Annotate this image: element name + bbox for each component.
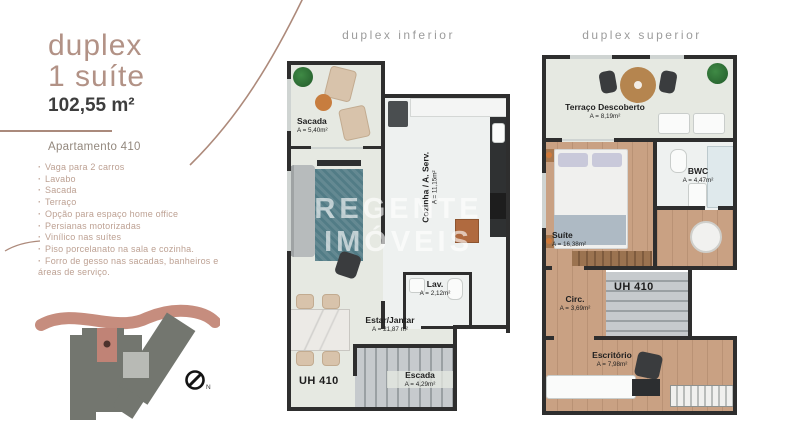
dining-chair	[322, 351, 340, 366]
service-cabinet	[455, 219, 479, 243]
wall	[506, 94, 510, 333]
plan-title-superior: duplex superior	[542, 28, 742, 42]
dining-chair	[322, 294, 340, 309]
desk-dark	[632, 379, 660, 396]
room-name: Sacada	[297, 117, 328, 127]
unit-label-inferior: UH 410	[299, 375, 339, 387]
room-name: Terraço Descoberto	[555, 103, 655, 113]
stove	[490, 193, 506, 219]
feature-item: ·Piso porcelanato na sala e cozinha.	[38, 244, 238, 256]
room-label-escada: Escada A = 4,29m²	[387, 371, 453, 388]
room-label-sacada: Sacada A = 5,40m²	[297, 117, 328, 134]
wall	[594, 336, 692, 340]
area-rug	[315, 169, 363, 261]
room-name: BWC	[662, 167, 734, 177]
wall	[542, 55, 546, 415]
wall	[287, 61, 385, 65]
info-panel: duplex 1 suíte 102,55 m² Apartamento 410…	[0, 0, 285, 441]
feature-item: ·Persianas motorizadas	[38, 221, 238, 233]
feature-list: ·Vaga para 2 carros ·Lavabo ·Sacada ·Ter…	[38, 162, 238, 279]
wall	[688, 266, 737, 270]
window	[650, 55, 684, 59]
wall	[584, 266, 692, 270]
room-label-escritorio: Escritório A = 7,98m²	[567, 351, 657, 368]
room-name: Escritório	[567, 351, 657, 361]
feature-label: Persianas motorizadas	[45, 221, 141, 231]
bullet-icon: ·	[38, 221, 45, 233]
feature-label: Vaga para 2 carros	[45, 162, 124, 172]
siteplan: N	[35, 300, 220, 435]
fridge	[388, 101, 408, 127]
unit-label-superior: UH 410	[614, 281, 654, 293]
room-area: A = 7,98m²	[567, 361, 657, 368]
lamp	[546, 152, 552, 158]
wall	[733, 55, 737, 270]
feature-label: Terraço	[45, 197, 76, 207]
floorplan-superior: Terraço Descoberto A = 8,19m² Suíte A = …	[542, 55, 737, 415]
feature-item: ·Lavabo	[38, 174, 238, 186]
room-area: A = 16,38m²	[552, 241, 586, 248]
feature-label: Sacada	[45, 185, 77, 195]
planter-box	[693, 113, 725, 134]
wall	[381, 98, 385, 244]
slat-bench	[670, 385, 734, 407]
room-name: Estar/Jantar	[330, 316, 450, 326]
room-name: Suíte	[552, 231, 586, 241]
feature-item: ·Sacada	[38, 185, 238, 197]
bullet-icon: ·	[38, 162, 45, 174]
floorplan-inferior: Sacada A = 5,40m² Cozinha / A. Serv. A =…	[287, 61, 510, 411]
room-area: A = 11,15m²	[431, 112, 438, 262]
kitchen-sink	[492, 123, 505, 143]
room-area: A = 4,47m²	[662, 177, 734, 184]
bwc-sink	[688, 183, 707, 208]
title-line2: 1 suíte	[48, 61, 145, 92]
window	[287, 171, 291, 251]
feature-item: ·Forro de gesso nas sacadas, banheiros e…	[38, 256, 238, 279]
room-label-circ: Circ. A = 3,69m²	[550, 295, 600, 312]
feature-label: Forro de gesso nas sacadas, banheiros e …	[38, 256, 218, 278]
room-area: A = 5,40m²	[297, 127, 328, 134]
decorative-curve-small	[0, 232, 45, 257]
wall	[688, 266, 692, 340]
room-area: A = 4,29m²	[387, 381, 453, 388]
wall	[542, 266, 552, 270]
feature-item: ·Terraço	[38, 197, 238, 209]
wall	[453, 325, 457, 411]
wall	[657, 206, 705, 210]
sliding-door	[562, 139, 614, 141]
wall	[688, 336, 737, 340]
round-coffee-table	[315, 94, 332, 111]
apartment-subtitle: Apartamento 410	[48, 141, 141, 153]
room-label-bwc: BWC A = 4,47m²	[662, 167, 734, 184]
wall	[614, 138, 737, 142]
sliding-door	[311, 147, 363, 149]
bullet-icon: ·	[38, 256, 45, 268]
planter-box	[658, 113, 690, 134]
feature-label: Vinílico nas suítes	[45, 232, 121, 242]
room-name: Cozinha / A. Serv.	[422, 112, 432, 262]
sofa	[290, 165, 315, 257]
feature-label: Piso porcelanato na sala e cozinha.	[45, 244, 194, 254]
room-name: Circ.	[550, 295, 600, 305]
pillow	[592, 153, 622, 167]
feature-item: ·Opção para espaço home office	[38, 209, 238, 221]
room-label-suite: Suíte A = 16,38m²	[552, 231, 586, 248]
total-area: 102,55 m²	[48, 95, 135, 117]
plant-icon	[293, 67, 313, 87]
siteplan-road	[41, 311, 215, 325]
room-area: A = 21,87 m²	[330, 326, 450, 333]
room-name: Lav.	[405, 280, 465, 290]
bullet-icon: ·	[38, 197, 45, 209]
feature-item: ·Vinílico nas suítes	[38, 232, 238, 244]
wall	[469, 272, 472, 329]
room-name: Escada	[387, 371, 453, 381]
bullet-icon: ·	[38, 185, 45, 197]
wall	[542, 411, 737, 415]
dining-chair	[296, 351, 314, 366]
feature-item: ·Vaga para 2 carros	[38, 162, 238, 174]
feature-label: Opção para espaço home office	[45, 209, 178, 219]
plant-icon	[707, 63, 728, 84]
wall	[733, 336, 737, 415]
pillow	[558, 153, 588, 167]
room-area: A = 2,12m²	[405, 290, 465, 297]
title-line1: duplex	[48, 30, 145, 61]
desk-long	[546, 375, 636, 399]
round-chair	[690, 221, 722, 253]
window	[570, 55, 612, 59]
room-area: A = 3,69m²	[550, 305, 600, 312]
feature-label: Lavabo	[45, 174, 76, 184]
siteplan-atrium	[123, 352, 149, 378]
room-area: A = 8,19m²	[555, 113, 655, 120]
wall	[403, 272, 472, 275]
siteplan-unit-dot	[104, 341, 111, 348]
wardrobe	[572, 251, 652, 266]
bullet-icon: ·	[38, 209, 45, 221]
dining-chair	[296, 294, 314, 309]
wall	[353, 344, 357, 376]
wall	[287, 146, 311, 149]
compass-north-label: N	[206, 384, 211, 391]
wall	[381, 94, 510, 98]
room-label-cozinha: Cozinha / A. Serv. A = 11,15m²	[422, 112, 439, 262]
brochure-canvas: duplex 1 suíte 102,55 m² Apartamento 410…	[0, 0, 800, 441]
compass-icon: N	[187, 372, 212, 392]
tv-panel	[317, 160, 361, 166]
wall	[353, 344, 457, 348]
wall	[542, 336, 554, 340]
wall	[542, 138, 562, 142]
terrace-table-center	[634, 81, 642, 89]
plan-title-inferior: duplex inferior	[287, 28, 510, 42]
page-title: duplex 1 suíte	[48, 30, 145, 92]
room-label-lav: Lav. A = 2,12m²	[405, 280, 465, 297]
window	[542, 173, 546, 228]
bullet-icon: ·	[38, 174, 45, 186]
divider-line	[0, 130, 112, 132]
wall	[287, 407, 457, 411]
wall	[381, 61, 385, 98]
window	[287, 79, 291, 131]
wall	[718, 206, 737, 210]
room-label-estar: Estar/Jantar A = 21,87 m²	[330, 316, 450, 333]
room-label-terraco: Terraço Descoberto A = 8,19m²	[555, 103, 655, 120]
